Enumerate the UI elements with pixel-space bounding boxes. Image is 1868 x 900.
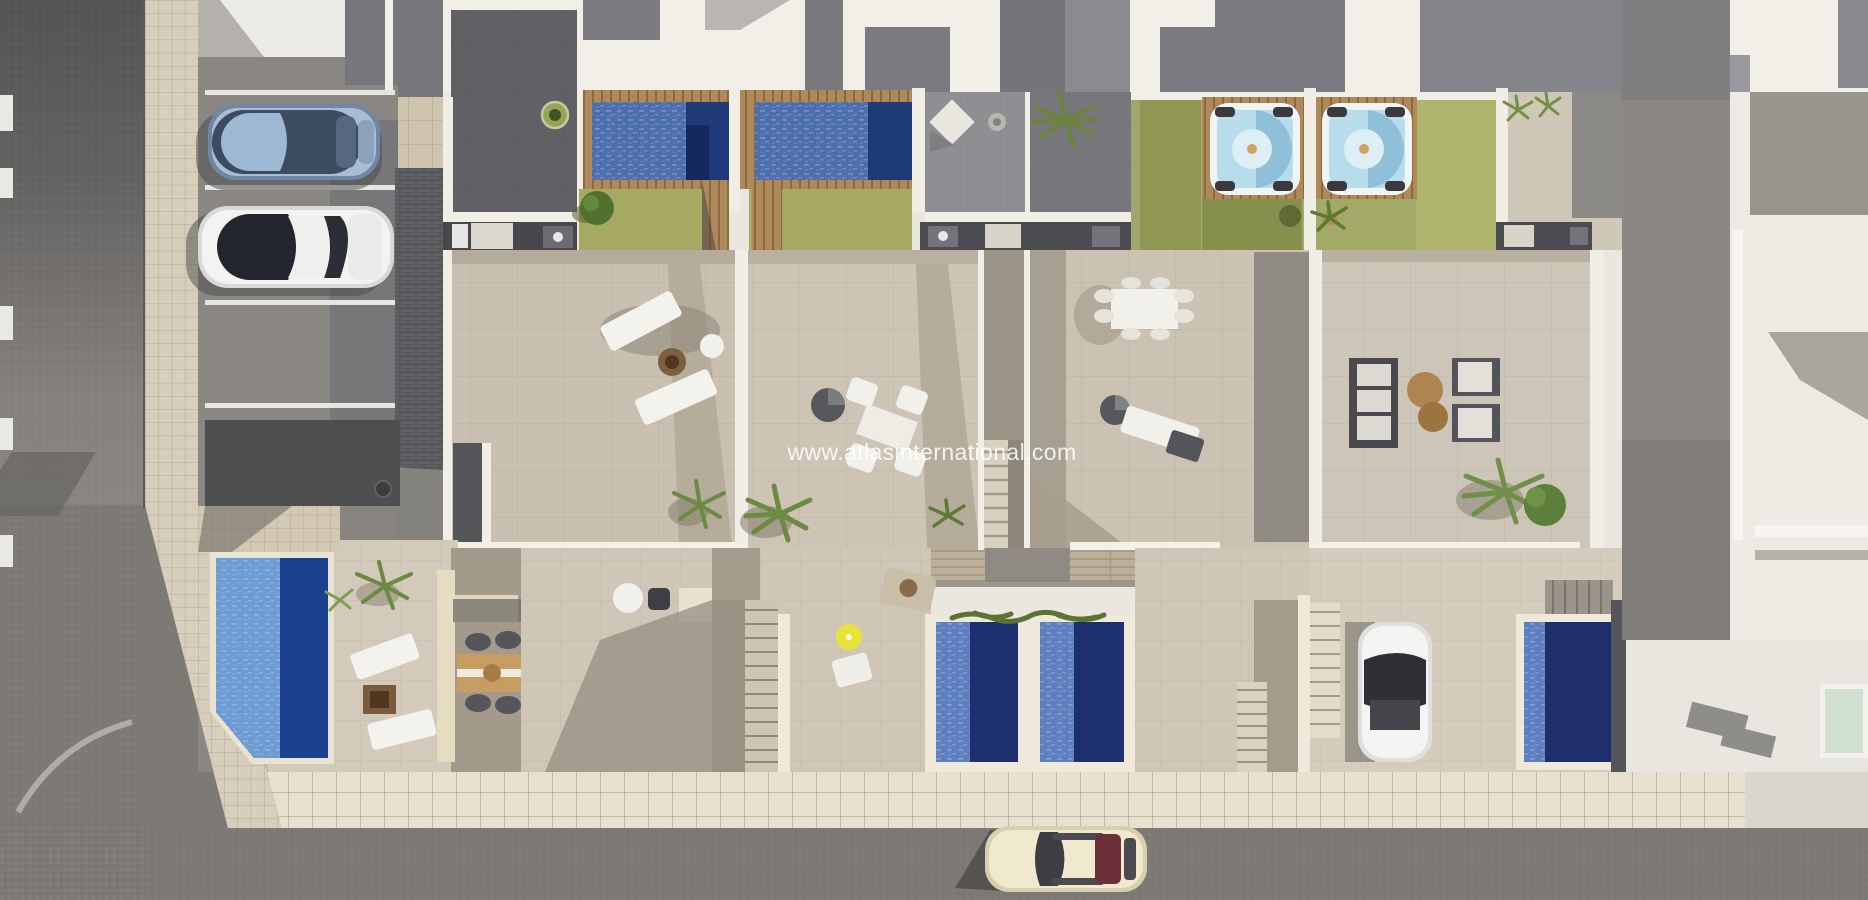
svg-text:www.atlasinternational.com: www.atlasinternational.com — [786, 439, 1076, 465]
